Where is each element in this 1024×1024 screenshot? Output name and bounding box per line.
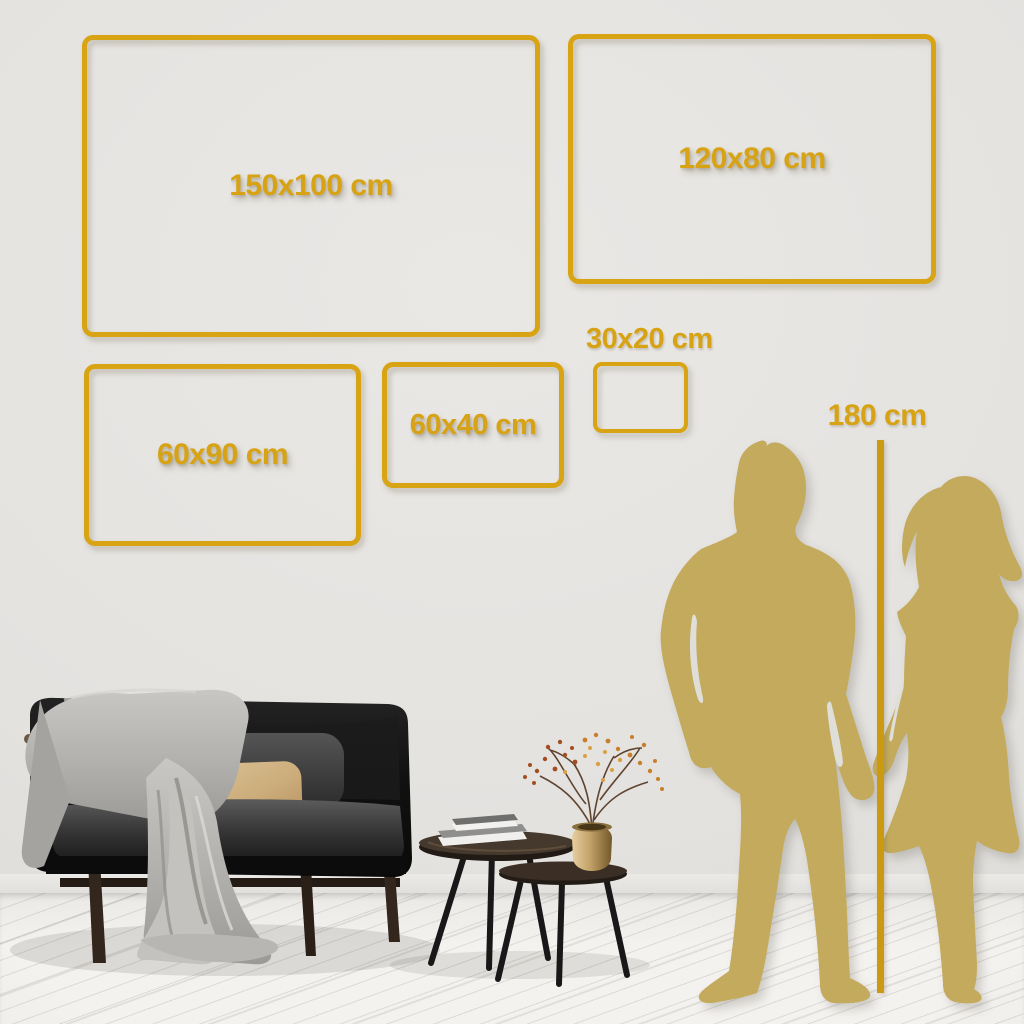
couple-silhouettes (0, 0, 1024, 1024)
woman-silhouette (873, 476, 1022, 1003)
size-guide-scene: 150x100 cm 120x80 cm 30x20 cm 60x40 cm 6… (0, 0, 1024, 1024)
height-marker-label: 180 cm (806, 399, 948, 433)
man-silhouette (661, 440, 875, 1003)
height-marker-line (877, 440, 884, 993)
